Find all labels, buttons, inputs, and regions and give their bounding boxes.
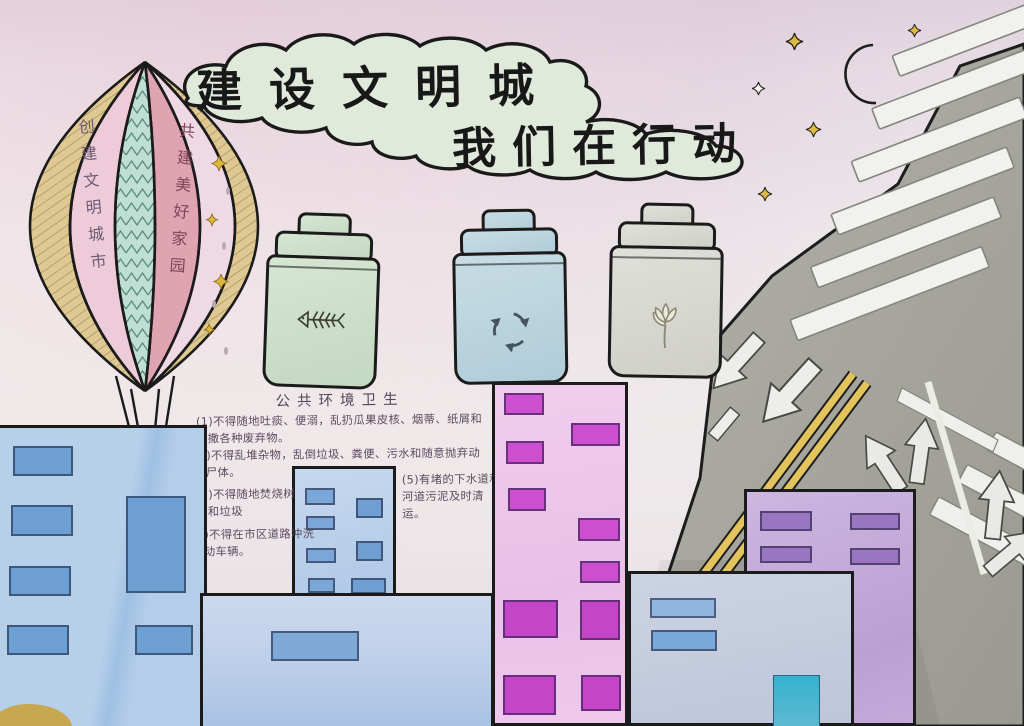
window (850, 548, 900, 565)
recycle-arrows-icon (487, 307, 534, 354)
hand-drawn-civility-poster: 创建文明城市 共建美好家园 建设文明城 我们在行动 公共环境卫生 (1)不得随地… (0, 0, 1024, 726)
window (580, 600, 620, 640)
window (508, 488, 546, 511)
window (503, 600, 558, 638)
window (504, 393, 544, 415)
poster-title-line1: 建设文明城 (195, 49, 561, 121)
window (578, 518, 620, 541)
building-wide-blue (200, 593, 494, 726)
bin-body (608, 245, 724, 379)
window (126, 496, 186, 593)
bin-body (452, 251, 568, 385)
bin-body (262, 254, 381, 390)
poster-title-line2: 我们在行动 (451, 107, 752, 176)
window (651, 630, 717, 651)
window (760, 546, 812, 563)
window (13, 446, 73, 476)
window (11, 505, 73, 536)
window (9, 566, 71, 596)
sanitation-rule: (4)不得在市区道路冲洗机动车辆。 (192, 526, 316, 561)
sanitation-rule: (5)有堵的下水道和河道污泥及时清运。 (402, 471, 505, 523)
building-blue-gray (628, 571, 854, 726)
window (850, 513, 900, 530)
window (135, 625, 193, 655)
window (760, 511, 812, 531)
window (351, 578, 386, 594)
building-pink (492, 382, 628, 726)
window (308, 578, 335, 593)
window (503, 675, 556, 715)
other-waste-bin (606, 201, 727, 383)
window (7, 625, 69, 655)
window (580, 561, 620, 583)
window (650, 598, 716, 618)
building-left-blue (0, 425, 207, 726)
window (271, 631, 359, 661)
sanitation-rule: (3)不得随地焚烧树叶和垃圾 (196, 486, 304, 521)
window (356, 498, 383, 518)
door (773, 675, 820, 726)
flower-icon (645, 297, 686, 352)
window (506, 441, 544, 464)
window (581, 675, 621, 711)
sanitation-rule: (1)不得随地吐痰、便溺，乱扔瓜果皮核、烟蒂、纸屑和抛撒各种废弃物。 (196, 411, 488, 448)
window (305, 488, 335, 505)
recyclable-bin (450, 207, 571, 389)
window (571, 423, 620, 446)
fishbone-icon (296, 304, 347, 336)
kitchen-waste-bin (261, 210, 385, 394)
window (356, 541, 383, 561)
